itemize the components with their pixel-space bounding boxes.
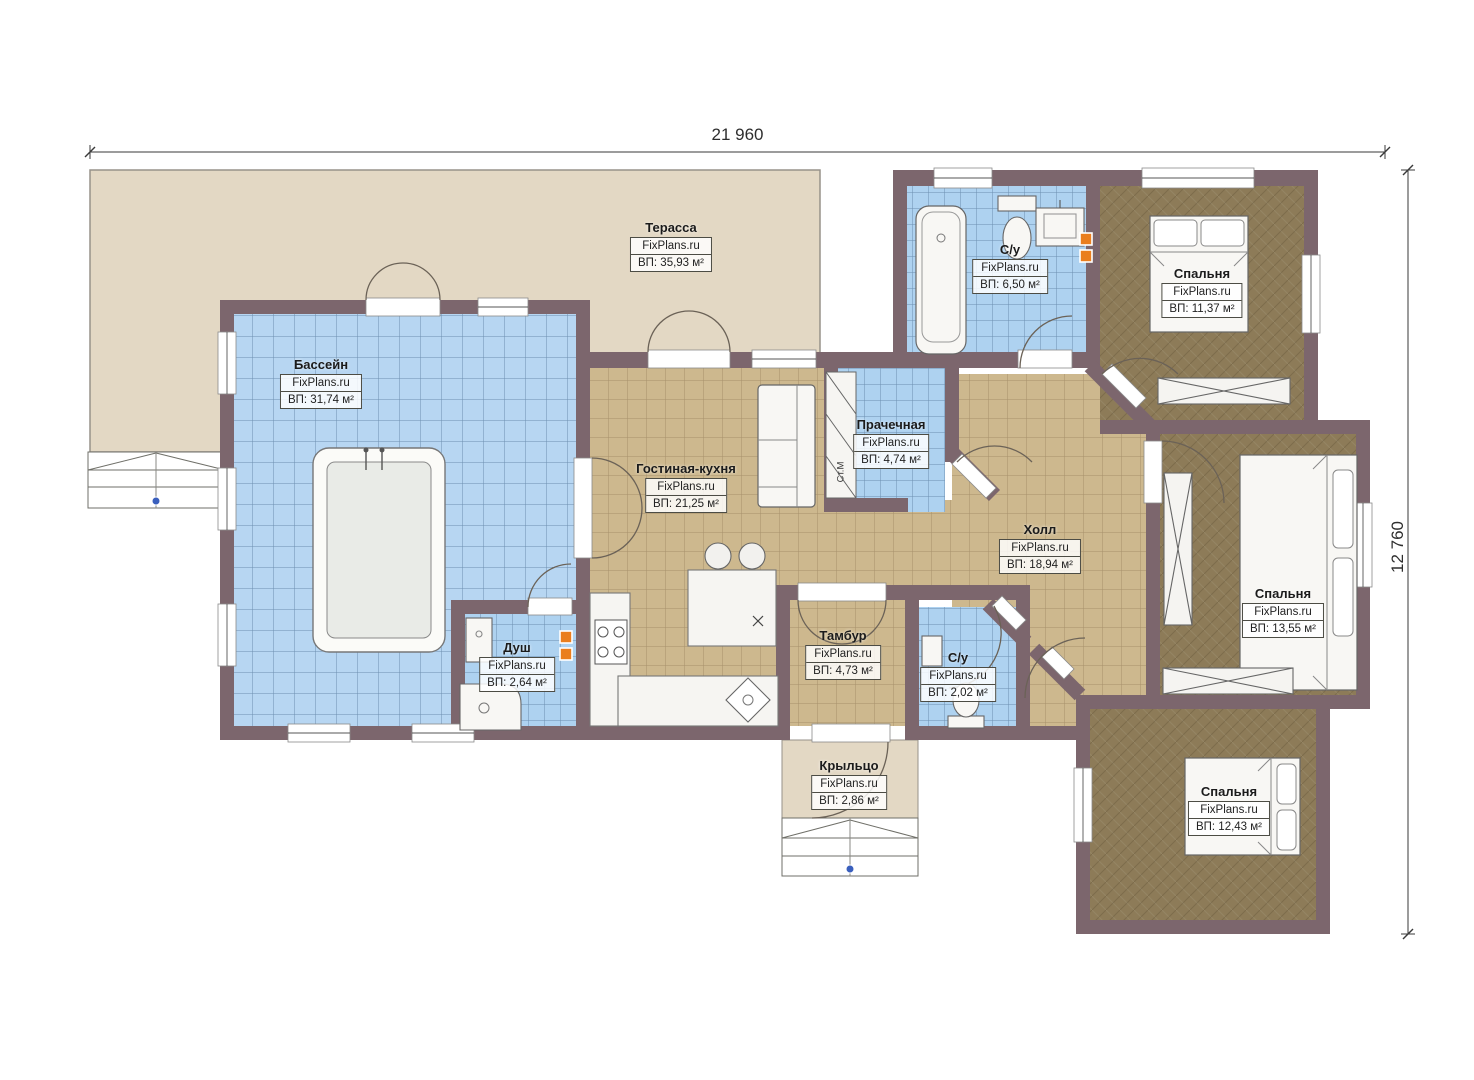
- floor-plan-drawing: [0, 0, 1474, 1080]
- room-area: ВП: 4,73 м²: [806, 663, 880, 679]
- room-area: ВП: 21,25 м²: [646, 496, 726, 512]
- pool-basin: [313, 448, 445, 653]
- room-name: Душ: [479, 640, 555, 655]
- room-area: ВП: 6,50 м²: [973, 277, 1047, 293]
- room-area: ВП: 2,02 м²: [921, 685, 995, 701]
- brand-watermark: FixPlans.ru: [1189, 802, 1269, 819]
- dimension-width-label: 21 960: [90, 125, 1385, 145]
- sofa: [758, 385, 815, 507]
- wardrobe-middle-bedroom-bottom: [1163, 668, 1293, 694]
- terrace-steps: [88, 452, 225, 508]
- room-name: Бассейн: [280, 357, 362, 372]
- brand-watermark: FixPlans.ru: [281, 375, 361, 392]
- room-area: ВП: 35,93 м²: [631, 255, 711, 271]
- room-area: ВП: 2,64 м²: [480, 675, 554, 691]
- room-label-bathroom-main: С/у FixPlans.ru ВП: 6,50 м²: [972, 242, 1048, 294]
- room-label-bedroom-middle: Спальня FixPlans.ru ВП: 13,55 м²: [1242, 586, 1324, 638]
- room-name: Крыльцо: [811, 758, 887, 773]
- room-area: ВП: 12,43 м²: [1189, 819, 1269, 835]
- bed-middle: [1240, 455, 1357, 690]
- room-label-bedroom-bottom: Спальня FixPlans.ru ВП: 12,43 м²: [1188, 784, 1270, 836]
- room-label-shower: Душ FixPlans.ru ВП: 2,64 м²: [479, 640, 555, 692]
- room-name: Спальня: [1188, 784, 1270, 799]
- brand-watermark: FixPlans.ru: [646, 479, 726, 496]
- brand-watermark: FixPlans.ru: [854, 435, 928, 452]
- room-name: Прачечная: [853, 417, 929, 432]
- room-label-bathroom-small: С/у FixPlans.ru ВП: 2,02 м²: [920, 650, 996, 702]
- brand-watermark: FixPlans.ru: [921, 668, 995, 685]
- room-area: ВП: 2,86 м²: [812, 793, 886, 809]
- room-name: Терасса: [630, 220, 712, 235]
- brand-watermark: FixPlans.ru: [806, 646, 880, 663]
- brand-watermark: FixPlans.ru: [1243, 604, 1323, 621]
- dimension-height-label: 12 760: [1388, 521, 1408, 573]
- room-area: ВП: 11,37 м²: [1162, 301, 1241, 317]
- floor-plan-canvas: 21 960 12 760 Ст.М Терасса FixPlans.ru В…: [0, 0, 1474, 1080]
- room-label-terrace: Терасса FixPlans.ru ВП: 35,93 м²: [630, 220, 712, 272]
- room-area: ВП: 13,55 м²: [1243, 621, 1323, 637]
- room-area: ВП: 18,94 м²: [1000, 557, 1080, 573]
- room-label-hall: Холл FixPlans.ru ВП: 18,94 м²: [999, 522, 1081, 574]
- room-name: Холл: [999, 522, 1081, 537]
- room-label-bedroom-top: Спальня FixPlans.ru ВП: 11,37 м²: [1161, 266, 1242, 318]
- brand-watermark: FixPlans.ru: [631, 238, 711, 255]
- room-label-pool: Бассейн FixPlans.ru ВП: 31,74 м²: [280, 357, 362, 409]
- room-name: С/у: [972, 242, 1048, 257]
- room-area: ВП: 4,74 м²: [854, 452, 928, 468]
- brand-watermark: FixPlans.ru: [812, 776, 886, 793]
- brand-watermark: FixPlans.ru: [1162, 284, 1241, 301]
- wardrobe-middle-bedroom: [1164, 473, 1192, 625]
- room-name: С/у: [920, 650, 996, 665]
- room-name: Спальня: [1161, 266, 1242, 281]
- room-name: Гостиная-кухня: [636, 461, 736, 476]
- room-label-tambour: Тамбур FixPlans.ru ВП: 4,73 м²: [805, 628, 881, 680]
- room-label-laundry: Прачечная FixPlans.ru ВП: 4,74 м²: [853, 417, 929, 469]
- washing-machine-label: Ст.М: [836, 462, 847, 483]
- brand-watermark: FixPlans.ru: [480, 658, 554, 675]
- brand-watermark: FixPlans.ru: [973, 260, 1047, 277]
- wardrobe-top-bedroom: [1158, 378, 1290, 404]
- bathtub: [916, 206, 966, 354]
- stove: [595, 620, 627, 664]
- room-label-porch: Крыльцо FixPlans.ru ВП: 2,86 м²: [811, 758, 887, 810]
- brand-watermark: FixPlans.ru: [1000, 540, 1080, 557]
- porch-steps: [782, 818, 918, 876]
- room-name: Тамбур: [805, 628, 881, 643]
- room-area: ВП: 31,74 м²: [281, 392, 361, 408]
- room-label-living-kitchen: Гостиная-кухня FixPlans.ru ВП: 21,25 м²: [636, 461, 736, 513]
- room-name: Спальня: [1242, 586, 1324, 601]
